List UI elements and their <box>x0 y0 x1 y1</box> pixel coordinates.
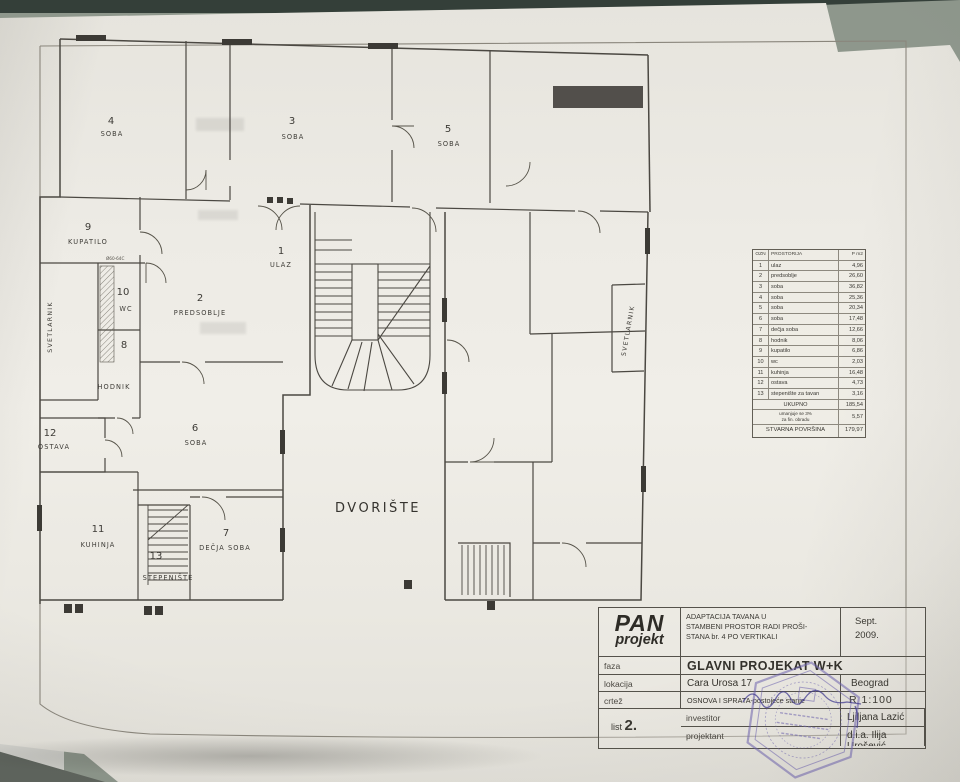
room-13-name: STEPENIŠTE <box>143 573 194 582</box>
cell-area: 2,03 <box>839 357 865 368</box>
room-7-name: DEČJA SOBA <box>199 543 251 552</box>
total-value: 185,54 <box>839 400 865 411</box>
header-pm2: P m2 <box>839 250 865 261</box>
cell-name: wc <box>769 357 839 368</box>
cell-name: soba <box>769 282 839 293</box>
room-11-name: KUHINJA <box>81 541 116 549</box>
lokacija-label: lokacija <box>599 675 681 692</box>
cell-name: predsoblje <box>769 271 839 282</box>
room-6-number: 6 <box>192 423 198 434</box>
room-8-number: 8 <box>121 340 127 351</box>
cell-ozn: 8 <box>753 336 769 347</box>
room-labels: 4 SOBA 3 SOBA 5 SOBA 9 KUPATILO 1 ULAZ 2… <box>38 116 637 582</box>
cell-name: soba <box>769 293 839 304</box>
cell-ozn: 3 <box>753 282 769 293</box>
cell-area: 36,82 <box>839 282 865 293</box>
faza-label: faza <box>599 657 681 675</box>
room-1-name: ULAZ <box>270 261 292 269</box>
room-11-number: 11 <box>92 524 105 535</box>
room-5-number: 5 <box>445 124 451 135</box>
cell-area: 26,60 <box>839 271 865 282</box>
deduction-label: umanjuje se 3% za fin. obradu <box>753 410 839 425</box>
lightwell-left-label: SVETLARNIK <box>47 301 54 352</box>
cell-area: 3,16 <box>839 389 865 400</box>
deduction-row: umanjuje se 3% za fin. obradu 5,57 <box>753 410 865 425</box>
date-month: Sept. <box>855 615 925 629</box>
cell-area: 6,86 <box>839 346 865 357</box>
room-area-table: OZN PROSTORIJA P m2 1ulaz4,96 2predsoblj… <box>752 249 866 438</box>
room-10-number: 10 <box>117 287 130 298</box>
cell-ozn: 10 <box>753 357 769 368</box>
date-year: 2009. <box>855 629 925 643</box>
cell-area: 16,48 <box>839 368 865 379</box>
table-row: 4soba25,36 <box>753 293 865 304</box>
cell-ozn: 11 <box>753 368 769 379</box>
cell-name: hodnik <box>769 336 839 347</box>
table-row: 2predsoblje26,60 <box>753 271 865 282</box>
cell-name: dečja soba <box>769 325 839 336</box>
room-2-number: 2 <box>197 293 203 304</box>
room-4-name: SOBA <box>101 130 124 138</box>
room-9-name: KUPATILO <box>68 238 108 246</box>
table-row: 7dečja soba12,66 <box>753 325 865 336</box>
table-row: 13stepenište za tavan3,16 <box>753 389 865 400</box>
cell-area: 17,48 <box>839 314 865 325</box>
cell-ozn: 13 <box>753 389 769 400</box>
deduction-line2: za fin. obradu <box>782 417 810 422</box>
window-and-chimney-marks <box>37 35 650 615</box>
outer-walls <box>40 39 650 604</box>
cell-name: stepenište za tavan <box>769 389 839 400</box>
table-row: 12ostava4,73 <box>753 378 865 389</box>
cell-name: ostava <box>769 378 839 389</box>
cell-name: soba <box>769 314 839 325</box>
cell-ozn: 12 <box>753 378 769 389</box>
table-row: 10wc2,03 <box>753 357 865 368</box>
logo-projekt: projekt <box>599 634 680 647</box>
duct-hatch <box>100 266 114 362</box>
cell-ozn: 5 <box>753 303 769 314</box>
cell-ozn: 4 <box>753 293 769 304</box>
room-4-number: 4 <box>108 116 114 127</box>
sheet-number: 2. <box>625 717 638 734</box>
deduction-value: 5,57 <box>839 410 865 425</box>
room-10-name: WC <box>119 305 132 313</box>
cell-ozn: 6 <box>753 314 769 325</box>
duct-annotation: Ø60-64C <box>106 256 124 261</box>
total-row: UKUPNO 185,54 <box>753 400 865 411</box>
room-3-name: SOBA <box>282 133 305 141</box>
header-prostorija: PROSTORIJA <box>769 250 839 261</box>
room-8-name: HODNIK <box>97 383 130 391</box>
room-7-number: 7 <box>223 528 229 539</box>
right-wing-stair <box>462 545 504 595</box>
bleed-through-ghosts <box>196 118 246 334</box>
cell-area: 12,66 <box>839 325 865 336</box>
attic-stair-13 <box>148 505 188 585</box>
cell-area: 20,34 <box>839 303 865 314</box>
courtyard-label: DVORIŠTE <box>335 500 421 516</box>
room-6-name: SOBA <box>185 439 208 447</box>
room-3-number: 3 <box>289 116 295 127</box>
room-1-number: 1 <box>278 246 284 257</box>
deduction-line1: umanjuje se 3% <box>779 411 812 416</box>
net-value: 179,97 <box>839 425 865 437</box>
room-12-name: OSTAVA <box>38 443 70 451</box>
net-area-row: STVARNA POVRŠINA 179,97 <box>753 425 865 437</box>
cell-ozn: 9 <box>753 346 769 357</box>
room-13-number: 13 <box>150 551 163 562</box>
sheet-number-cell: list 2. <box>599 709 681 746</box>
table-row: 3soba36,82 <box>753 282 865 293</box>
cell-name: kupatilo <box>769 346 839 357</box>
crtez-label: crtež <box>599 692 681 709</box>
project-line1: ADAPTACIJA TAVANA U <box>686 612 840 622</box>
table-row: 9kupatilo6,86 <box>753 346 865 357</box>
official-stamp <box>695 650 925 782</box>
sheet-word: list <box>611 722 622 732</box>
cell-area: 25,36 <box>839 293 865 304</box>
cell-area: 4,73 <box>839 378 865 389</box>
cell-ozn: 2 <box>753 271 769 282</box>
cell-name: kuhinja <box>769 368 839 379</box>
total-label: UKUPNO <box>753 400 839 411</box>
table-header-row: OZN PROSTORIJA P m2 <box>753 250 865 261</box>
room-12-number: 12 <box>44 428 57 439</box>
cell-ozn: 7 <box>753 325 769 336</box>
table-row: 11kuhinja16,48 <box>753 368 865 379</box>
table-row: 5soba20,34 <box>753 303 865 314</box>
table-row: 1ulaz4,96 <box>753 261 865 272</box>
room-9-number: 9 <box>85 222 91 233</box>
room-2-name: PREDSOBLJE <box>174 309 227 317</box>
project-line3: STANA br. 4 PO VERTIKALI <box>686 632 840 642</box>
table-row: 8hodnik8,06 <box>753 336 865 347</box>
room-5-name: SOBA <box>438 140 461 148</box>
logo-pan: PAN <box>599 612 680 634</box>
cell-name: ulaz <box>769 261 839 272</box>
cell-ozn: 1 <box>753 261 769 272</box>
scanned-floorplan-photo: Ø60-64C 4 SOBA 3 SOBA 5 SOBA 9 KUPATILO … <box>0 0 960 782</box>
header-ozn: OZN <box>753 250 769 261</box>
net-label: STVARNA POVRŠINA <box>753 425 839 437</box>
company-logo: PAN projekt <box>599 608 681 657</box>
table-row: 6soba17,48 <box>753 314 865 325</box>
cell-name: soba <box>769 303 839 314</box>
cell-area: 4,96 <box>839 261 865 272</box>
cell-area: 8,06 <box>839 336 865 347</box>
main-staircase <box>315 212 430 391</box>
project-line2: STAMBENI PROSTOR RADI PROŠI- <box>686 622 840 632</box>
